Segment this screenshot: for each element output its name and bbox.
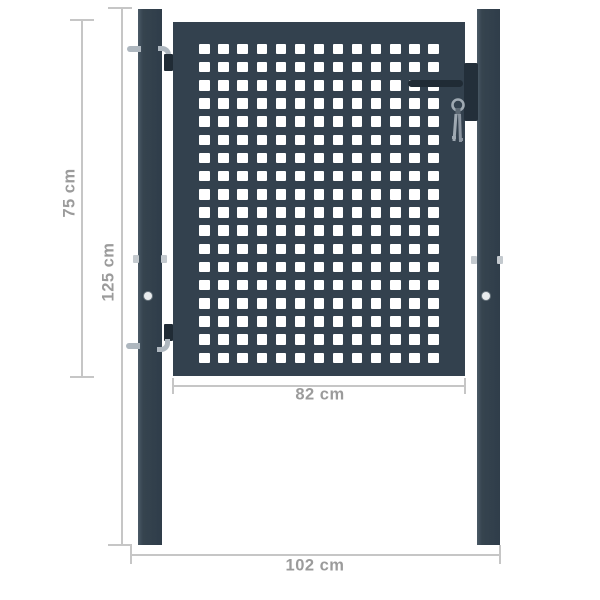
perforation-hole xyxy=(199,244,210,255)
perforation-hole xyxy=(428,116,439,127)
perforation-hole xyxy=(257,353,268,364)
perforation-hole xyxy=(218,207,229,218)
perforation-hole xyxy=(352,262,363,273)
perforation-hole xyxy=(218,135,229,146)
perforation-hole xyxy=(333,171,344,182)
perforation-hole xyxy=(428,334,439,345)
dimension-label-panel-width: 82 cm xyxy=(295,386,344,405)
perforation-hole xyxy=(237,225,248,236)
perforation-hole xyxy=(314,316,325,327)
gate-panel xyxy=(173,22,465,376)
perforation-hole xyxy=(371,171,382,182)
perforation-hole xyxy=(409,189,420,200)
perforation-hole xyxy=(199,207,210,218)
perforation-hole xyxy=(237,353,248,364)
perforation-hole xyxy=(314,171,325,182)
dimension-tick xyxy=(108,7,132,9)
perforation-hole xyxy=(276,298,287,309)
perforation-hole xyxy=(390,80,401,91)
perforation-hole xyxy=(199,334,210,345)
perforation-hole xyxy=(409,116,420,127)
perforation-hole xyxy=(314,116,325,127)
perforation-hole xyxy=(218,262,229,273)
connector-tab xyxy=(161,255,167,263)
post-bolt xyxy=(144,292,152,300)
perforation-hole xyxy=(257,334,268,345)
perforation-hole xyxy=(237,80,248,91)
perforation-hole xyxy=(237,316,248,327)
perforation-grid xyxy=(195,40,443,367)
perforation-hole xyxy=(333,116,344,127)
perforation-hole xyxy=(218,280,229,291)
perforation-hole xyxy=(276,44,287,55)
perforation-hole xyxy=(409,44,420,55)
perforation-hole xyxy=(218,334,229,345)
perforation-hole xyxy=(390,207,401,218)
perforation-hole xyxy=(409,135,420,146)
gate-handle xyxy=(408,80,463,87)
dimension-line-vertical xyxy=(81,20,83,377)
perforation-hole xyxy=(276,262,287,273)
perforation-hole xyxy=(295,171,306,182)
perforation-hole xyxy=(428,225,439,236)
perforation-hole xyxy=(276,98,287,109)
dimension-label-post-height: 125 cm xyxy=(100,243,119,302)
perforation-hole xyxy=(276,135,287,146)
perforation-hole xyxy=(371,207,382,218)
perforation-hole xyxy=(390,262,401,273)
perforation-hole xyxy=(218,189,229,200)
perforation-hole xyxy=(333,298,344,309)
perforation-hole xyxy=(428,44,439,55)
perforation-hole xyxy=(295,334,306,345)
perforation-hole xyxy=(199,116,210,127)
perforation-hole xyxy=(390,298,401,309)
perforation-hole xyxy=(390,171,401,182)
perforation-hole xyxy=(237,98,248,109)
perforation-hole xyxy=(199,153,210,164)
hinge-elbow-icon xyxy=(157,339,170,352)
perforation-hole xyxy=(276,153,287,164)
perforation-hole xyxy=(428,298,439,309)
perforation-hole xyxy=(333,262,344,273)
perforation-hole xyxy=(371,153,382,164)
perforation-hole xyxy=(276,207,287,218)
perforation-hole xyxy=(276,280,287,291)
perforation-hole xyxy=(333,353,344,364)
perforation-hole xyxy=(218,80,229,91)
perforation-hole xyxy=(237,207,248,218)
perforation-hole xyxy=(314,280,325,291)
perforation-hole xyxy=(237,244,248,255)
perforation-hole xyxy=(352,334,363,345)
perforation-hole xyxy=(314,244,325,255)
perforation-hole xyxy=(428,189,439,200)
perforation-hole xyxy=(371,44,382,55)
perforation-hole xyxy=(257,225,268,236)
perforation-hole xyxy=(409,98,420,109)
perforation-hole xyxy=(199,80,210,91)
hinge-pin-icon xyxy=(127,46,141,52)
perforation-hole xyxy=(314,298,325,309)
perforation-hole xyxy=(390,244,401,255)
perforation-hole xyxy=(257,153,268,164)
perforation-hole xyxy=(352,316,363,327)
perforation-hole xyxy=(237,189,248,200)
perforation-hole xyxy=(390,316,401,327)
perforation-hole xyxy=(371,280,382,291)
perforation-hole xyxy=(199,44,210,55)
perforation-hole xyxy=(352,135,363,146)
perforation-hole xyxy=(314,44,325,55)
perforation-hole xyxy=(237,116,248,127)
dimension-label-panel-height: 75 cm xyxy=(61,168,80,217)
perforation-hole xyxy=(295,189,306,200)
hinge-block xyxy=(164,54,173,71)
perforation-hole xyxy=(295,98,306,109)
perforation-hole xyxy=(371,225,382,236)
perforation-hole xyxy=(371,62,382,73)
perforation-hole xyxy=(428,135,439,146)
perforation-hole xyxy=(314,80,325,91)
dimension-label-total-width: 102 cm xyxy=(286,557,345,576)
perforation-hole xyxy=(314,153,325,164)
dimension-line-vertical xyxy=(121,8,123,545)
perforation-hole xyxy=(333,80,344,91)
perforation-hole xyxy=(218,116,229,127)
perforation-hole xyxy=(257,207,268,218)
perforation-hole xyxy=(352,207,363,218)
perforation-hole xyxy=(237,280,248,291)
perforation-hole xyxy=(276,244,287,255)
perforation-hole xyxy=(314,225,325,236)
perforation-hole xyxy=(257,98,268,109)
perforation-hole xyxy=(314,189,325,200)
perforation-hole xyxy=(218,353,229,364)
perforation-hole xyxy=(409,334,420,345)
perforation-hole xyxy=(352,62,363,73)
perforation-hole xyxy=(295,298,306,309)
perforation-hole xyxy=(199,189,210,200)
perforation-hole xyxy=(371,244,382,255)
perforation-hole xyxy=(199,298,210,309)
perforation-hole xyxy=(390,334,401,345)
perforation-hole xyxy=(295,225,306,236)
perforation-hole xyxy=(352,116,363,127)
perforation-hole xyxy=(276,334,287,345)
perforation-hole xyxy=(352,244,363,255)
perforation-hole xyxy=(333,244,344,255)
perforation-hole xyxy=(409,153,420,164)
perforation-hole xyxy=(314,353,325,364)
perforation-hole xyxy=(371,298,382,309)
perforation-hole xyxy=(257,189,268,200)
perforation-hole xyxy=(295,135,306,146)
perforation-hole xyxy=(276,116,287,127)
gate-dimension-diagram: 125 cm 75 cm xyxy=(0,0,600,600)
perforation-hole xyxy=(257,135,268,146)
perforation-hole xyxy=(218,225,229,236)
dimension-tick xyxy=(464,378,466,394)
perforation-hole xyxy=(276,62,287,73)
perforation-hole xyxy=(199,316,210,327)
perforation-hole xyxy=(371,316,382,327)
perforation-hole xyxy=(237,135,248,146)
perforation-hole xyxy=(237,62,248,73)
perforation-hole xyxy=(409,353,420,364)
perforation-hole xyxy=(352,189,363,200)
perforation-hole xyxy=(428,262,439,273)
perforation-hole xyxy=(352,44,363,55)
connector-tab xyxy=(471,256,477,264)
perforation-hole xyxy=(371,262,382,273)
perforation-hole xyxy=(218,244,229,255)
perforation-hole xyxy=(371,98,382,109)
perforation-hole xyxy=(333,225,344,236)
perforation-hole xyxy=(257,80,268,91)
perforation-hole xyxy=(390,98,401,109)
perforation-hole xyxy=(295,62,306,73)
perforation-hole xyxy=(428,353,439,364)
perforation-hole xyxy=(237,298,248,309)
dimension-tick xyxy=(499,545,501,564)
perforation-hole xyxy=(257,244,268,255)
perforation-hole xyxy=(352,280,363,291)
keys-icon xyxy=(446,96,470,146)
perforation-hole xyxy=(199,135,210,146)
perforation-hole xyxy=(218,62,229,73)
perforation-hole xyxy=(295,262,306,273)
post-bolt xyxy=(482,292,490,300)
dimension-tick xyxy=(130,545,132,564)
perforation-hole xyxy=(314,262,325,273)
dimension-tick xyxy=(108,544,132,546)
perforation-hole xyxy=(276,353,287,364)
perforation-hole xyxy=(199,171,210,182)
perforation-hole xyxy=(218,298,229,309)
perforation-hole xyxy=(409,207,420,218)
perforation-hole xyxy=(257,171,268,182)
perforation-hole xyxy=(390,280,401,291)
perforation-hole xyxy=(257,62,268,73)
perforation-hole xyxy=(218,44,229,55)
perforation-hole xyxy=(218,171,229,182)
perforation-hole xyxy=(295,153,306,164)
hinge-pin-icon xyxy=(126,343,140,349)
perforation-hole xyxy=(333,62,344,73)
perforation-hole xyxy=(237,262,248,273)
perforation-hole xyxy=(352,80,363,91)
perforation-hole xyxy=(295,353,306,364)
perforation-hole xyxy=(428,280,439,291)
perforation-hole xyxy=(257,116,268,127)
dimension-line-horizontal xyxy=(131,554,500,556)
perforation-hole xyxy=(333,44,344,55)
perforation-hole xyxy=(237,44,248,55)
perforation-hole xyxy=(333,280,344,291)
perforation-hole xyxy=(390,135,401,146)
perforation-hole xyxy=(409,171,420,182)
perforation-hole xyxy=(199,262,210,273)
perforation-hole xyxy=(428,244,439,255)
perforation-hole xyxy=(409,280,420,291)
perforation-hole xyxy=(333,316,344,327)
perforation-hole xyxy=(218,316,229,327)
perforation-hole xyxy=(295,244,306,255)
connector-tab xyxy=(497,256,503,264)
perforation-hole xyxy=(409,316,420,327)
perforation-hole xyxy=(371,116,382,127)
perforation-hole xyxy=(428,171,439,182)
perforation-hole xyxy=(276,316,287,327)
perforation-hole xyxy=(199,280,210,291)
perforation-hole xyxy=(352,298,363,309)
perforation-hole xyxy=(352,353,363,364)
perforation-hole xyxy=(333,98,344,109)
perforation-hole xyxy=(390,225,401,236)
perforation-hole xyxy=(314,98,325,109)
perforation-hole xyxy=(295,207,306,218)
perforation-hole xyxy=(428,153,439,164)
perforation-hole xyxy=(199,225,210,236)
perforation-hole xyxy=(199,62,210,73)
perforation-hole xyxy=(371,135,382,146)
perforation-hole xyxy=(409,262,420,273)
perforation-hole xyxy=(218,153,229,164)
perforation-hole xyxy=(314,135,325,146)
perforation-hole xyxy=(409,298,420,309)
perforation-hole xyxy=(371,80,382,91)
perforation-hole xyxy=(237,171,248,182)
perforation-hole xyxy=(409,225,420,236)
perforation-hole xyxy=(428,207,439,218)
dimension-tick xyxy=(70,376,94,378)
perforation-hole xyxy=(295,80,306,91)
perforation-hole xyxy=(257,262,268,273)
perforation-hole xyxy=(295,280,306,291)
perforation-hole xyxy=(314,207,325,218)
perforation-hole xyxy=(218,98,229,109)
perforation-hole xyxy=(352,153,363,164)
perforation-hole xyxy=(428,316,439,327)
perforation-hole xyxy=(237,334,248,345)
perforation-hole xyxy=(428,62,439,73)
perforation-hole xyxy=(371,353,382,364)
dimension-tick xyxy=(172,378,174,394)
dimension-tick xyxy=(70,19,94,21)
perforation-hole xyxy=(257,280,268,291)
perforation-hole xyxy=(352,225,363,236)
right-post xyxy=(477,9,500,545)
perforation-hole xyxy=(352,171,363,182)
perforation-hole xyxy=(352,98,363,109)
perforation-hole xyxy=(390,353,401,364)
perforation-hole xyxy=(390,189,401,200)
perforation-hole xyxy=(199,353,210,364)
perforation-hole xyxy=(237,153,248,164)
perforation-hole xyxy=(276,189,287,200)
connector-tab xyxy=(133,255,139,263)
left-post xyxy=(138,9,162,545)
perforation-hole xyxy=(295,316,306,327)
perforation-hole xyxy=(333,153,344,164)
perforation-hole xyxy=(333,135,344,146)
perforation-hole xyxy=(276,171,287,182)
perforation-hole xyxy=(314,62,325,73)
perforation-hole xyxy=(390,116,401,127)
perforation-hole xyxy=(295,44,306,55)
perforation-hole xyxy=(276,225,287,236)
perforation-hole xyxy=(257,44,268,55)
perforation-hole xyxy=(390,153,401,164)
perforation-hole xyxy=(371,189,382,200)
perforation-hole xyxy=(390,62,401,73)
perforation-hole xyxy=(390,44,401,55)
perforation-hole xyxy=(295,116,306,127)
perforation-hole xyxy=(428,98,439,109)
perforation-hole xyxy=(333,189,344,200)
perforation-hole xyxy=(276,80,287,91)
perforation-hole xyxy=(371,334,382,345)
perforation-hole xyxy=(199,98,210,109)
perforation-hole xyxy=(333,334,344,345)
perforation-hole xyxy=(333,207,344,218)
perforation-hole xyxy=(257,316,268,327)
perforation-hole xyxy=(409,244,420,255)
perforation-hole xyxy=(409,62,420,73)
perforation-hole xyxy=(257,298,268,309)
perforation-hole xyxy=(314,334,325,345)
